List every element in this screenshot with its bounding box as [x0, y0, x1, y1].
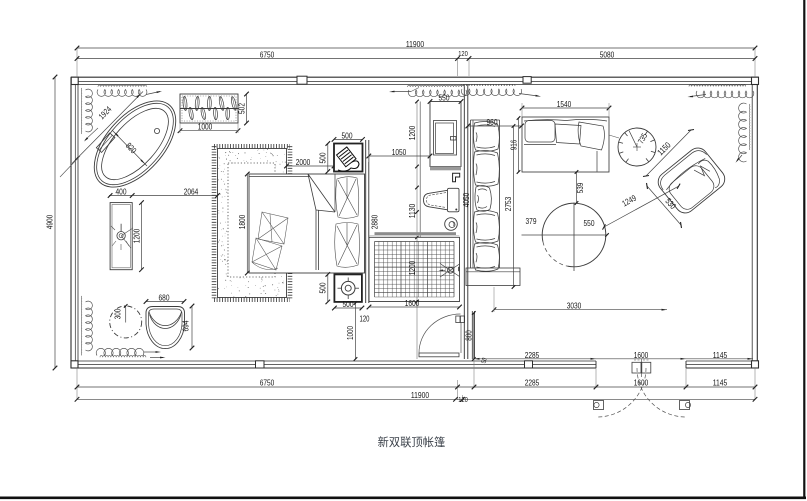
svg-text:4050: 4050	[461, 193, 471, 208]
svg-text:400: 400	[116, 186, 127, 196]
svg-text:1050: 1050	[392, 147, 407, 157]
svg-text:500: 500	[318, 152, 328, 163]
svg-text:550: 550	[439, 92, 450, 102]
svg-text:5080: 5080	[600, 49, 615, 59]
svg-text:500: 500	[342, 130, 353, 140]
svg-text:新双联顶帐篷: 新双联顶帐篷	[378, 435, 446, 449]
svg-text:2000: 2000	[296, 157, 311, 167]
svg-text:680: 680	[159, 292, 170, 302]
svg-text:300: 300	[113, 308, 123, 319]
svg-text:1540: 1540	[557, 99, 572, 109]
svg-text:1600: 1600	[634, 350, 649, 360]
svg-text:2880: 2880	[370, 215, 380, 230]
svg-text:120: 120	[458, 49, 468, 58]
svg-text:2064: 2064	[184, 186, 199, 196]
svg-text:4900: 4900	[45, 215, 55, 230]
svg-text:120: 120	[360, 315, 370, 324]
svg-text:500: 500	[343, 299, 354, 309]
svg-text:539: 539	[575, 182, 585, 193]
svg-text:1145: 1145	[713, 378, 728, 388]
svg-text:1200: 1200	[132, 229, 142, 244]
svg-text:379: 379	[526, 216, 537, 226]
svg-text:960: 960	[487, 117, 498, 127]
svg-text:1800: 1800	[237, 215, 247, 230]
svg-text:1000: 1000	[198, 122, 213, 132]
svg-text:2285: 2285	[525, 378, 540, 388]
svg-text:2285: 2285	[525, 350, 540, 360]
svg-text:1145: 1145	[713, 350, 728, 360]
svg-text:1200: 1200	[407, 126, 417, 141]
svg-text:6750: 6750	[260, 378, 275, 388]
svg-text:1000: 1000	[345, 326, 355, 340]
svg-text:550: 550	[584, 218, 595, 228]
svg-text:500: 500	[318, 282, 328, 293]
svg-text:1130: 1130	[407, 204, 417, 219]
svg-text:11900: 11900	[411, 390, 429, 400]
svg-text:2753: 2753	[503, 197, 513, 212]
svg-text:120: 120	[458, 395, 468, 404]
svg-text:502: 502	[237, 103, 247, 114]
svg-text:1600: 1600	[405, 298, 420, 308]
svg-text:694: 694	[181, 320, 191, 331]
svg-text:11900: 11900	[406, 39, 424, 49]
svg-text:3030: 3030	[567, 300, 582, 310]
svg-text:6750: 6750	[260, 49, 275, 59]
svg-text:1200: 1200	[407, 261, 417, 276]
svg-text:800: 800	[464, 330, 474, 341]
svg-text:1600: 1600	[634, 378, 649, 388]
